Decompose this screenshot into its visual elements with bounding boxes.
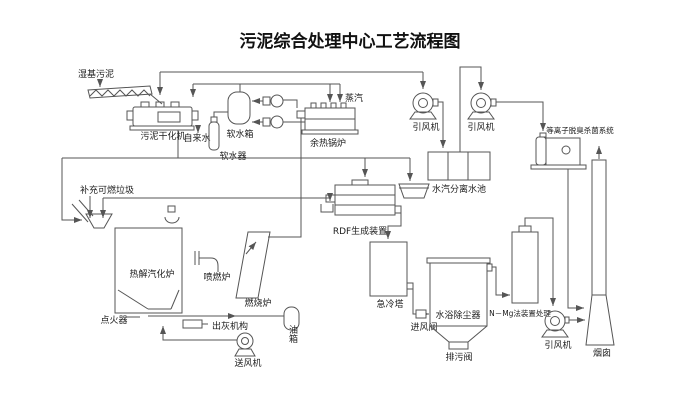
induced-fan-1-label: 引风机: [412, 121, 439, 133]
pump-icon: [271, 116, 283, 128]
sludge-dryer: 污泥干化机: [127, 102, 198, 158]
drain-valve-label: 排污阀: [445, 351, 472, 363]
supplement-waste-label: 补充可燃垃圾: [80, 184, 134, 196]
dust-collector-label: 水浴除尘器: [435, 309, 480, 321]
spray-burner: 喷燃炉: [195, 251, 231, 283]
rdf-device: RDF生成装置: [321, 158, 429, 239]
separation-pool-label: 水汽分离水池: [432, 183, 486, 195]
fan-icon: [471, 93, 491, 113]
collect-funnel: [399, 184, 429, 198]
combustion-furnace-label: 燃烧炉: [244, 297, 271, 309]
water-softener-label: 软水器: [219, 150, 246, 162]
ash-discharge-box: [183, 320, 202, 328]
rdf-device-label: RDF生成装置: [333, 225, 387, 237]
chimney-label: 烟囱: [593, 347, 611, 359]
page-title: 污泥综合处理中心工艺流程图: [240, 31, 461, 52]
pyrolysis-gasifier-label: 热解汽化炉: [129, 268, 174, 280]
n-mg-label: N－Mg法装置处理: [489, 308, 551, 318]
ash-discharge-label: 出灰机构: [212, 320, 248, 332]
spray-burner-label: 喷燃炉: [203, 271, 230, 283]
process-flow-diagram: 污泥综合处理中心工艺流程图 蒸汽 湿基污泥 污泥干化机 自来水: [0, 0, 700, 404]
supplement-waste: 补充可燃垃圾: [72, 184, 330, 228]
diagram-canvas: 污泥综合处理中心工艺流程图 蒸汽 湿基污泥 污泥干化机 自来水: [0, 0, 700, 404]
soft-water-tank-label: 软水箱: [226, 128, 253, 140]
fan-icon: [237, 333, 253, 349]
induced-fan-1: 引风机: [410, 93, 443, 148]
pyrolysis-gasifier: 热解汽化炉 点火器: [100, 206, 182, 326]
pump-icon: [271, 95, 283, 107]
sludge-dryer-label: 污泥干化机: [140, 130, 185, 142]
air-inlet-valve-label: 进风阀: [410, 322, 437, 333]
quench-tower-label: 急冷塔: [376, 298, 403, 310]
top-gas-lines: 蒸汽: [160, 72, 423, 104]
combustion-furnace: 燃烧炉: [236, 232, 272, 309]
quench-tower: 急冷塔 进风阀: [370, 242, 438, 333]
plasma-system: 等离子脱臭杀菌系统: [531, 125, 614, 308]
chimney: 烟囱: [586, 146, 614, 359]
induced-fan-2-label: 引风机: [467, 121, 494, 133]
igniter-label: 点火器: [100, 315, 127, 326]
dust-collector: 水浴除尘器 排污阀: [427, 258, 492, 363]
induced-fan-2: 引风机: [460, 67, 543, 152]
induced-fan-3-label: 引风机: [544, 339, 571, 351]
n-mg-tower: N－Mg法装置处理: [489, 218, 553, 318]
wet-sludge-feed: 湿基污泥: [78, 68, 162, 104]
fan-icon: [545, 311, 565, 331]
separation-pool: 水汽分离水池: [428, 152, 490, 195]
wet-sludge-label: 湿基污泥: [78, 68, 114, 80]
air-inlet-valve: [416, 310, 426, 318]
water-softener-cap: [211, 117, 217, 122]
oil-tank-label: 油箱: [287, 324, 298, 344]
bottom-equipment: 出灰机构 送风机 油箱: [148, 307, 299, 369]
plasma-system-label: 等离子脱臭杀菌系统: [546, 125, 614, 135]
tap-water-label: 自来水: [183, 132, 210, 144]
waste-heat-boiler-label: 余热锅炉: [310, 137, 346, 149]
fan-icon: [413, 93, 433, 113]
forced-draft-fan-label: 送风机: [234, 357, 261, 369]
gauge-icon: [168, 206, 175, 212]
waste-heat-boiler: 余热锅炉: [268, 103, 358, 237]
steam-label: 蒸汽: [345, 92, 363, 104]
soft-water-tank: [228, 92, 250, 124]
